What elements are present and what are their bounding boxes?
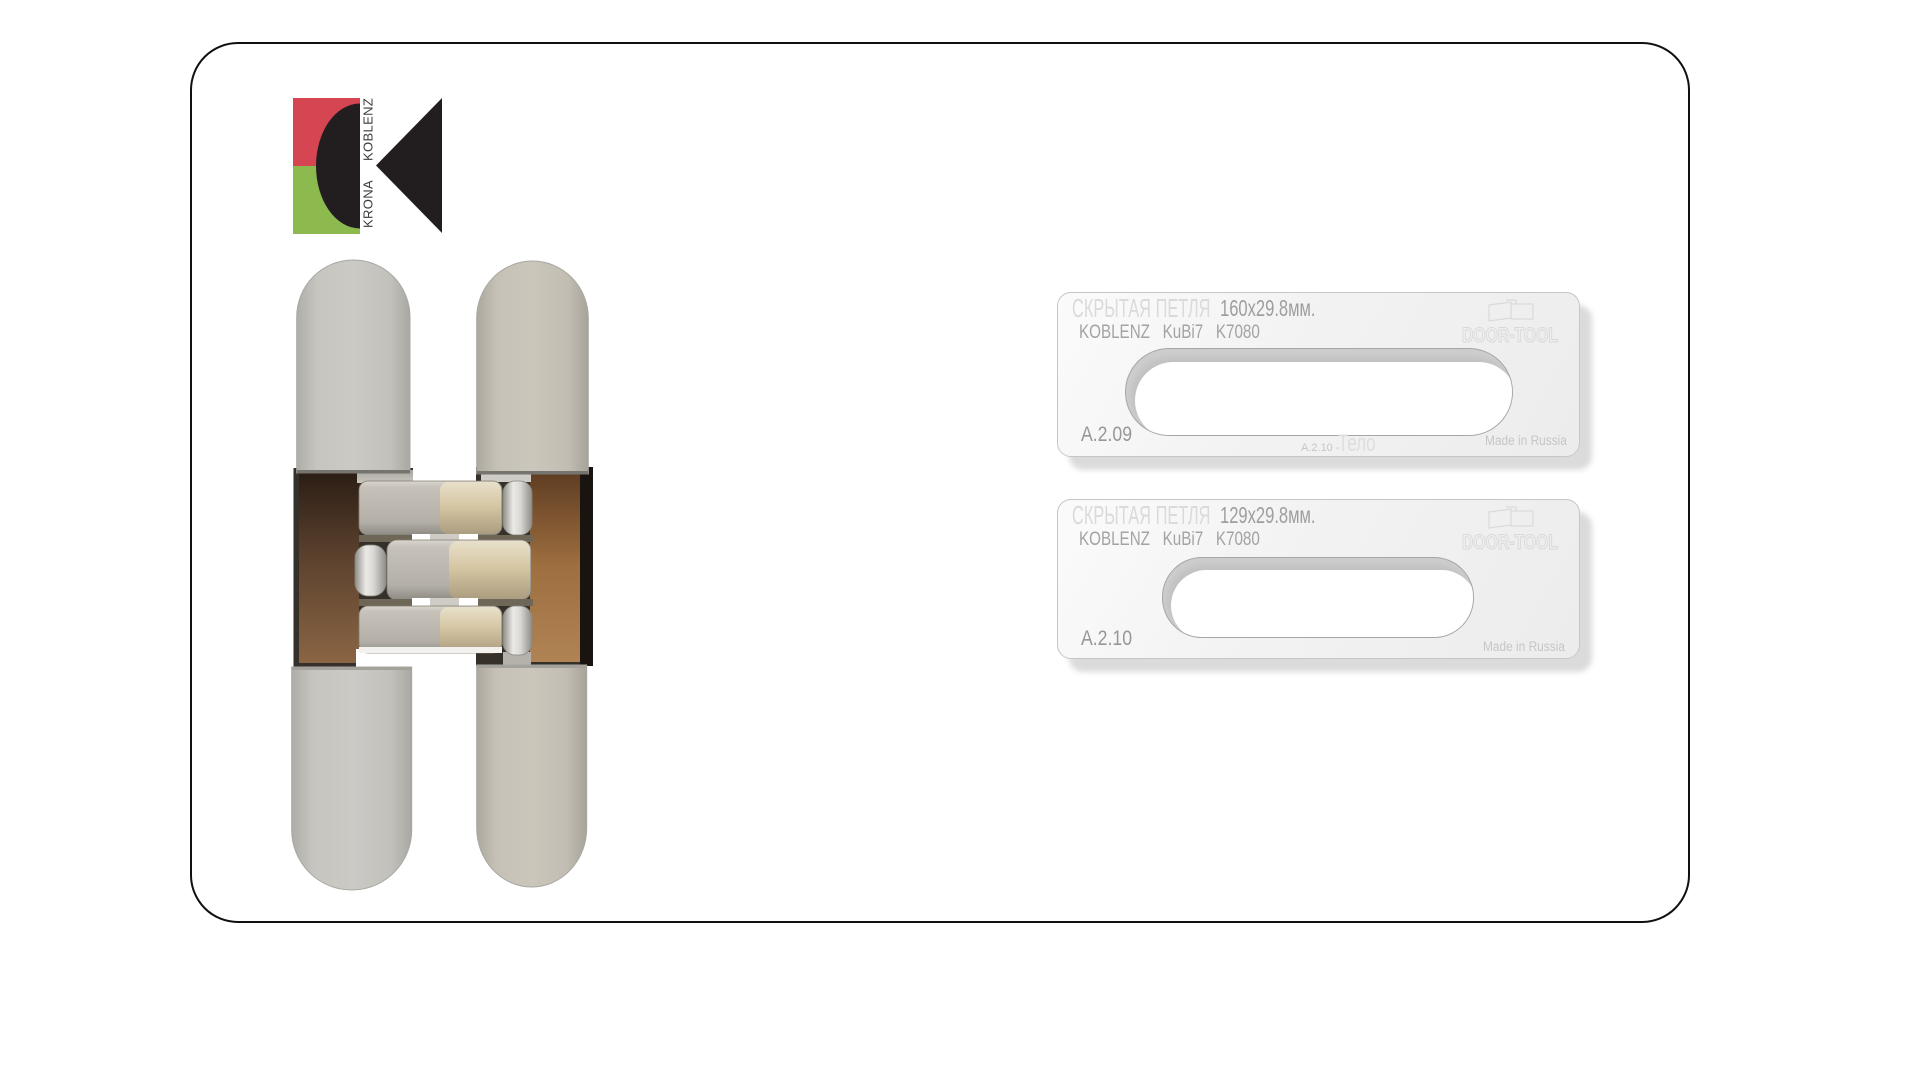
svg-text:KOBLENZ: KOBLENZ bbox=[361, 98, 376, 161]
svg-text:KRONA: KRONA bbox=[361, 180, 376, 228]
